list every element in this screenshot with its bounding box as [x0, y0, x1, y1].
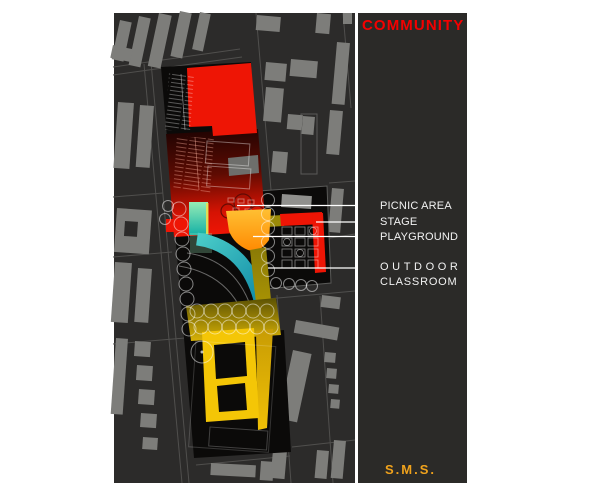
- label-classroom: CLASSROOM: [380, 276, 458, 288]
- legend-panel: [358, 13, 467, 483]
- page-title: COMMUNITY: [362, 17, 464, 34]
- label-outdoor: OUTDOOR: [380, 261, 461, 273]
- site-plan-page: COMMUNITY PICNIC AREA STAGE PLAYGROUND O…: [0, 0, 600, 500]
- label-stage: STAGE: [380, 216, 417, 228]
- label-picnic-area: PICNIC AREA: [380, 200, 452, 212]
- label-playground: PLAYGROUND: [380, 231, 458, 243]
- site-plan-map: [0, 0, 600, 500]
- community-building: [187, 63, 257, 136]
- designer-initials: S.M.S.: [385, 462, 436, 477]
